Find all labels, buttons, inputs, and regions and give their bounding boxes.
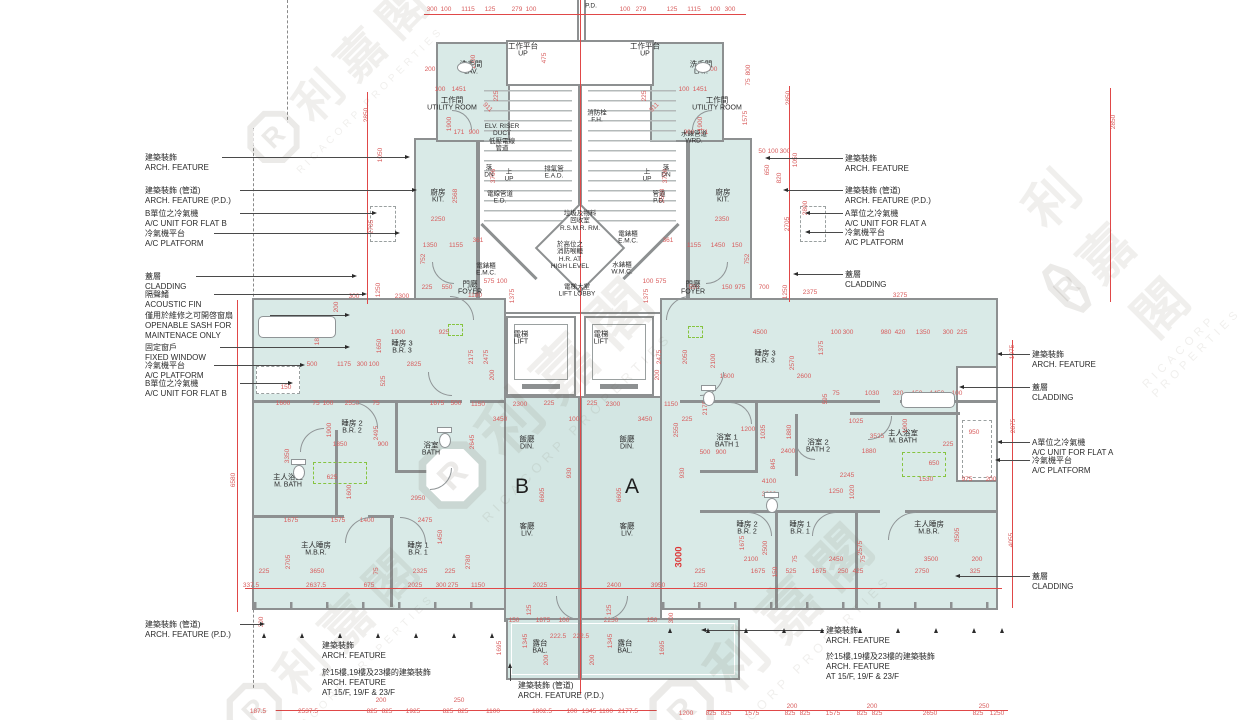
callout-label: 冷氣機平台A/C PLATFORM [1032,456,1091,476]
facade-arrow [896,628,900,633]
dimension-label: 2375 [803,290,817,297]
core-label: 電錶櫃E.M.C. [618,231,638,246]
dimension-label: 2350 [715,217,729,224]
dimension-label: 300 [843,330,854,337]
room-label: 廚房KIT. [431,187,446,204]
dimension-label: 200 [334,302,341,313]
dimension-label: 1100 [486,709,500,716]
dimension-label: 2325 [413,569,427,576]
dimension-label: 2400 [781,449,795,456]
leader-line [214,233,395,234]
dimension-label: 50 [758,149,765,156]
room-label: 浴室BATH [422,440,440,457]
dimension-label: 500 [307,362,318,369]
dimension-label: 825 [872,711,883,718]
core-label: 電梯大堂LIFT LOBBY [559,284,596,299]
core-label: ELV. RISERDUCT低壓電線管道 [485,123,520,153]
dimension-label: 75 [746,78,753,85]
floor-plan-drawing: R 利嘉閣 RICACORP PROPERTIES R 利嘉閣 RICACORP… [0,0,1240,720]
dimension-label: 1450 [438,530,445,544]
dimension-label: 550 [442,285,453,292]
dimension-label: 1675 [430,401,444,408]
dimension-label: 950 [969,430,980,437]
facade-arrow [972,628,976,633]
dimension-label: 2825 [407,362,421,369]
dimension-label: 100 [497,279,508,286]
louvre-box [688,326,703,338]
leader-line [960,576,1030,577]
dimension-label: 1155 [449,243,463,250]
dimension-label: 911 [481,102,493,114]
callout-label: 於15樓,19樓及23樓的建築裝飾ARCH. FEATUREAT 15/F, 1… [322,668,431,698]
dimension-label: 75 [372,401,379,408]
leader-line [196,276,352,277]
dimension-label: 250 [838,569,849,576]
louvre-box [448,324,463,336]
dimension-label: 1115 [687,7,701,14]
dimension-label: 300 [436,583,447,590]
dimension-label: 100 [710,7,721,14]
dimension-label: 3450 [493,417,507,424]
dimension-label: 100 [569,417,580,424]
dimension-label: 975 [962,477,973,484]
dimension-label: 361 [663,238,674,245]
dimension-label: 337.5 [243,583,259,590]
leader-line [1002,442,1030,443]
door-swing [345,517,371,543]
room-label: 工作平台UP [630,41,660,58]
dimension-label: 1600 [276,401,290,408]
dimension-label: 1250 [829,489,843,496]
door-swing [730,402,752,424]
dimension-label: 425 [853,569,864,576]
leader-line [240,624,260,625]
dimension-label: 225 [682,417,693,424]
dimension-label: 2705 [286,555,293,569]
dimension-label: 975 [735,285,746,292]
dimension-label: 300 [943,330,954,337]
dimension-label: 1675 [812,569,826,576]
callout-label: 冷氣機平台A/C PLATFORM [145,361,204,381]
dimension-label: 1575 [745,711,759,718]
dimension-label: 171 [454,130,465,137]
dimension-label: 2750 [915,569,929,576]
dimension-label: 225 [422,285,433,292]
dimension-label: 1150 [471,402,485,409]
dimension-label: 75 [312,401,319,408]
dimension-label: 1025 [849,419,863,426]
dimension-label: 1675 [740,536,747,550]
callout-label: A單位之冷氣機A/C UNIT FOR FLAT A [1032,438,1113,458]
dimension-label: 3505 [955,528,962,542]
dimension-label: 2050 [683,350,690,364]
dimension-label: 100 [643,279,654,286]
callout-label: 建築裝飾ARCH. FEATURE [845,154,909,174]
dimension-label: 3950 [651,583,665,590]
dimension-label: 475 [542,53,549,64]
dimension-label: 6580 [231,473,238,487]
dimension-label: 2475 [484,350,491,364]
callout-label: 僅用於維修之可開啓窗扇OPENABLE SASH FORMAINTENACE O… [145,311,233,341]
dimension-label: 825 [382,709,393,716]
dimension-label: 1802.5 [532,709,552,716]
dimension-label: 420 [895,330,906,337]
dimension-label: 279 [512,7,523,14]
dimension-label: 500 [700,450,711,457]
dimension-label: 1375 [510,289,517,303]
leader-line [240,383,288,384]
dimension-label: 900 [378,442,389,449]
callout-label: 建築裝飾ARCH. FEATURE [1032,350,1096,370]
door-swing [692,110,712,130]
dimension-label: 825 [785,711,796,718]
dimension-label: 75 [793,555,800,562]
generated-labels: R 利嘉閣 RICACORP PROPERTIES R 利嘉閣 RICACORP… [0,0,1240,720]
leader-arrow [345,345,350,349]
dimension-label: 1250 [376,283,383,297]
dimension-label: 225 [544,401,555,408]
leader-arrow [405,155,410,159]
dimension-label: 1115 [461,7,475,14]
callout-label: 固定窗戶FIXED WINDOW [145,343,206,363]
dimension-label: 800 [746,65,753,76]
facade-arrow [414,633,418,638]
room-label: 客廳LIV. [620,521,635,538]
dimension-label: 2025 [533,583,547,590]
dimension-label: 2570 [790,356,797,370]
dimension-label: 275 [448,583,459,590]
leader-arrow [995,458,1000,462]
callout-label: 建築裝飾 (管道)ARCH. FEATURE (P.D.) [145,186,231,206]
core-label: P.D. [585,2,597,9]
dimension-label: 752 [421,254,428,265]
dimension-label: 2650 [923,711,937,718]
core-label: 電錶櫃E.M.C. [476,263,496,278]
room-label: 睡房 3B.R. 3 [754,348,775,365]
room-label: 主人睡房M.B.R. [914,519,944,536]
dimension-label: 930 [680,468,687,479]
dimension-label: 150 [722,285,733,292]
leader-line [510,667,511,681]
dimension-label: 200 [972,557,983,564]
dimension-label: 2568 [453,189,460,203]
dimension-label: 200 [655,370,662,381]
louvre-box [313,462,367,484]
watermark: R 利嘉閣 RICACORP PROPERTIES [231,0,460,189]
dimension-label: 250 [454,698,465,705]
dimension-label: 1575 [826,711,840,718]
room-label: 門廳FOYER [681,279,705,296]
dimension-label: 2475 [657,350,664,364]
leader-line [240,213,372,214]
dimension-label: 100 [526,7,537,14]
dimension-label: 2250 [431,217,445,224]
dimension-label: 2850 [1111,115,1118,129]
dimension-label: 4500 [753,330,767,337]
dimension-label: 125 [527,605,534,616]
core-label: 於高位之消防喉轆H.R. ATHIGH LEVEL [551,241,589,271]
ricacorp-logo-icon: R [236,100,311,175]
dimension-label: 150 [281,385,292,392]
dimension-label: 1150 [471,583,485,590]
dimension-label: 752 [745,254,752,265]
leader-arrow [805,211,810,215]
door-swing [452,110,472,130]
dimension-label: 200 [425,67,436,74]
dimension-label: 100 [323,401,334,408]
flat-letter-b: B [515,475,529,499]
facade-arrow [820,628,824,633]
dimension-label: 825 [443,709,454,716]
dimension-label: 911 [649,102,661,114]
toilet-icon [703,391,715,406]
door-swing [300,428,324,452]
leader-arrow [997,440,1002,444]
dimension-label: 900 [469,130,480,137]
room-label: 電梯LIFT [594,329,609,346]
callout-label: 隔聲鰭ACOUSTIC FIN [145,290,201,310]
leader-line [1000,460,1030,461]
louvre-box [902,452,946,477]
door-swing [604,596,628,620]
toilet-icon [766,498,778,513]
facade-arrow [338,633,342,638]
dimension-label: 1600 [347,485,354,499]
sink-icon [457,62,473,73]
dimension-label: 825 [973,711,984,718]
leader-arrow [959,385,964,389]
dimension-label: 1350 [916,330,930,337]
dimension-label: 2475 [418,518,432,525]
dimension-label: 1451 [693,87,707,94]
leader-arrow [805,230,810,234]
callout-label: 冷氣機平台A/C PLATFORM [145,229,204,249]
dimension-label: 1575 [331,518,345,525]
dimension-label: 200 [544,655,551,666]
dimension-label: 300 [780,149,791,156]
dimension-label: 1450 [711,243,725,250]
facade-arrow [744,628,748,633]
dimension-label: 2500 [763,541,770,555]
dimension-label: 100 [620,7,631,14]
core-label: 落DN [484,165,493,180]
dimension-label: 300 [427,7,438,14]
leader-line [964,387,1030,388]
dimension-label: 825 [857,711,868,718]
dimension-label: 222.5 [550,634,566,641]
dimension-label: 820 [777,173,784,184]
dimension-label: 980 [881,330,892,337]
dimension-label: 1050 [378,148,385,162]
leader-arrow [765,156,770,160]
leader-line [220,347,345,348]
facade-arrow [300,633,304,638]
dimension-label: 825 [721,711,732,718]
dimension-label: 3275 [893,293,907,300]
leader-arrow [372,211,377,215]
callout-label: 建築裝飾ARCH. FEATURE [145,153,209,173]
dimension-label: 525 [381,376,388,387]
dimension-label: 1925 [406,709,420,716]
dimension-label: 500 [451,401,462,408]
core-label: 水錶管道WRD. [681,131,707,146]
dimension-label: 225 [494,91,501,102]
core-label: 上UP [504,169,513,184]
dimension-label: 361 [473,238,484,245]
leader-line [798,274,843,275]
dimension-label: 575 [656,279,667,286]
leader-line [240,190,412,191]
room-label: 飯廳DIN. [520,434,535,451]
leader-arrow [508,663,512,668]
facade-arrow [782,628,786,633]
callout-label: 蓋層CLADDING [1032,383,1073,403]
dimension-label: 150 [647,618,658,625]
dimension-label: 1695 [660,641,667,655]
room-label: 主人浴室M. BATH [888,428,918,445]
dimension-label: 1350 [423,243,437,250]
dimension-label: 1345 [608,634,615,648]
callout-label: 建築裝飾 (管道)ARCH. FEATURE (P.D.) [845,186,931,206]
dimension-label: 325 [970,569,981,576]
dimension-label: 1200 [679,711,693,718]
dimension-label: 2300 [395,294,409,301]
dimension-label: 2575 [858,541,865,555]
dimension-label: 1175 [337,362,351,369]
dimension-label: 3650 [310,569,324,576]
door-swing [430,468,452,490]
callout-label: 於15樓,19樓及23樓的建築裝飾ARCH. FEATUREAT 15/F, 1… [826,652,935,682]
dimension-label: 1650 [377,339,384,353]
dimension-label: 2300 [513,402,527,409]
dimension-label: 100 [567,709,578,716]
facade-arrow [1000,628,1004,633]
leader-arrow [395,231,400,235]
leader-line [214,294,362,295]
dimension-label: 187.5 [250,709,266,716]
dimension-label: 930 [567,468,574,479]
dimension-label: 200 [490,370,497,381]
core-label: 消防栓F.H. [587,110,607,125]
dimension-label: 1900 [327,423,334,437]
room-label: 電梯LIFT [514,329,529,346]
callout-label: B單位之冷氣機A/C UNIT FOR FLAT B [145,379,227,399]
dimension-label: 825 [706,711,717,718]
room-label: 工作間UTILITY ROOM [692,95,742,112]
dimension-label: 2950 [411,496,425,503]
dimension-label: 150 [773,567,780,578]
dimension-label: 2025 [408,583,422,590]
door-swing [666,296,690,320]
dimension-label: 225 [587,401,598,408]
dimension-label: 675 [364,583,375,590]
dimension-label: 222.5 [573,634,589,641]
dimension-label: 2550 [674,423,681,437]
room-label: 睡房 1B.R. 1 [789,519,810,536]
dimension-label: 100 [831,330,842,337]
dimension-label: 100 [369,362,380,369]
facade-arrow [376,633,380,638]
toilet-icon [293,465,305,480]
leader-line [810,232,843,233]
ricacorp-logo-icon: R [404,427,500,523]
dimension-label: 1100 [599,709,613,716]
door-swing [748,512,772,536]
dimension-label: 300 [725,7,736,14]
room-label: 客廳LIV. [520,521,535,538]
leader-arrow [362,292,367,296]
facade-arrow [490,633,494,638]
leader-arrow [793,272,798,276]
dimension-label: 1875 [536,618,550,625]
leader-arrow [345,313,350,317]
dimension-label: 4055 [1009,533,1016,547]
door-swing [428,372,452,396]
dimension-label: 100 [768,149,779,156]
dimension-label: 2705 [785,217,792,231]
dimension-label: 125 [485,7,496,14]
dimension-label: 1575 [743,111,750,125]
dimension-label: 225 [445,569,456,576]
dimension-label: 75 [861,555,868,562]
leader-arrow [412,188,417,192]
dimension-label: 1451 [452,87,466,94]
dimension-label: 2100 [711,354,718,368]
core-label: 水錶櫃W.M.C. [611,262,632,277]
leader-line [222,157,405,158]
room-label: 主人睡房M.B.R. [301,540,331,557]
dimension-label: 1675 [751,569,765,576]
dimension-label: 200 [590,655,597,666]
dimension-label: 2537.5 [298,709,318,716]
dimension-label: 200 [376,698,387,705]
door-swing [706,262,728,284]
dimension-label: 4100 [762,479,776,486]
dimension-label: 2850 [364,108,371,122]
leader-line [214,365,300,366]
dimension-label: 225 [259,569,270,576]
callout-label: 建築裝飾 (管道)ARCH. FEATURE (P.D.) [518,681,604,701]
core-label: 電線管道E.D. [487,191,513,206]
dimension-label: 2100 [744,557,758,564]
dimension-label: 2245 [840,473,854,480]
bathtub-icon [258,316,336,338]
callout-label: 建築裝飾ARCH. FEATURE [322,641,386,661]
dimension-label: 3500 [924,557,938,564]
dimension-label: 279 [636,7,647,14]
dimension-label: 1200 [741,427,755,434]
facade-arrow [452,633,456,638]
door-swing [450,296,474,320]
room-label: 睡房 3B.R. 3 [391,338,412,355]
dimension-label: 1050 [793,153,800,167]
door-swing [888,512,916,540]
dimension-label: 6605 [540,488,547,502]
dimension-label: 75 [374,567,381,574]
dimension-label: 1530 [919,477,933,484]
door-swing [812,512,836,536]
callout-label: B單位之冷氣機A/C UNIT FOR FLAT B [145,209,227,229]
core-label: 垃圾及物料回收室R.S.M.R. RM. [560,210,600,232]
dimension-label: 1345 [523,634,530,648]
dimension-label: 1850 [333,442,347,449]
sink-icon [695,62,711,73]
dimension-label: 225 [957,330,968,337]
dimension-label: 2177.5 [618,709,638,716]
dimension-label: 1020 [850,485,857,499]
callout-label: 蓋層CLADDING [1032,572,1073,592]
toilet-icon [439,433,451,448]
